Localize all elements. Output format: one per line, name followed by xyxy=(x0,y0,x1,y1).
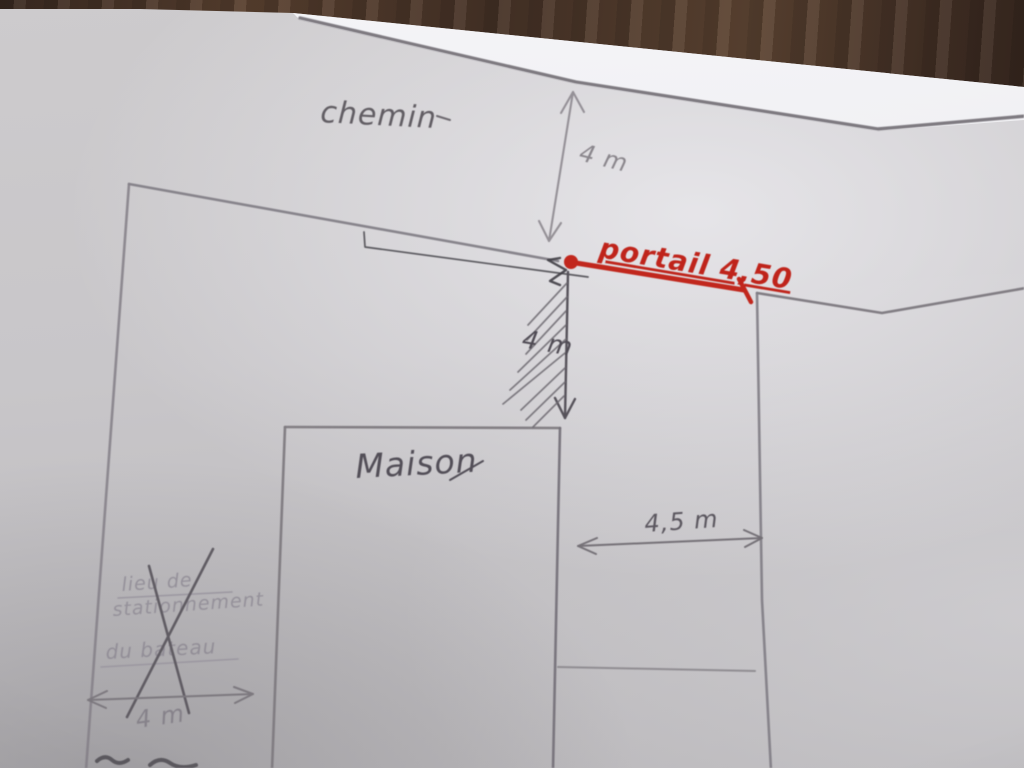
road-width-label: 4 m xyxy=(577,139,632,178)
crossed-out-note: lieu de stationnement du bateau xyxy=(101,549,265,717)
road-dim-shaft xyxy=(549,92,573,241)
front-boundary-line-left xyxy=(129,184,558,261)
strip-dim-shaft xyxy=(578,538,762,546)
strip-width-label: 4,5 m xyxy=(643,505,719,538)
portail-label: portail 4,50 xyxy=(596,231,795,296)
left-boundary-line xyxy=(86,184,129,768)
sketch-drawing: 4 m chemin portail 4,50 xyxy=(0,0,1024,768)
chemin-label: chemin xyxy=(320,95,438,136)
photo-of-site-plan: 4 m chemin portail 4,50 xyxy=(0,0,1024,768)
right-boundary-line xyxy=(757,293,771,768)
road-width-dimension-arrow xyxy=(539,92,584,241)
right-strip-divider-line xyxy=(558,667,755,671)
boat-dim-shaft xyxy=(88,694,253,700)
boat-area-width-label: 4 m xyxy=(134,699,187,734)
hatch xyxy=(533,396,564,427)
cut-off-writing-marks xyxy=(97,757,196,767)
maison-left-edge xyxy=(272,427,285,768)
chemin-dash-mark xyxy=(437,116,450,120)
maison-right-edge xyxy=(553,428,560,768)
fence-pen-line xyxy=(364,232,588,277)
maison-top-edge xyxy=(285,427,560,428)
hatch xyxy=(503,353,565,404)
maison-label: Maison xyxy=(354,441,478,486)
front-boundary-line-right xyxy=(757,288,1024,313)
